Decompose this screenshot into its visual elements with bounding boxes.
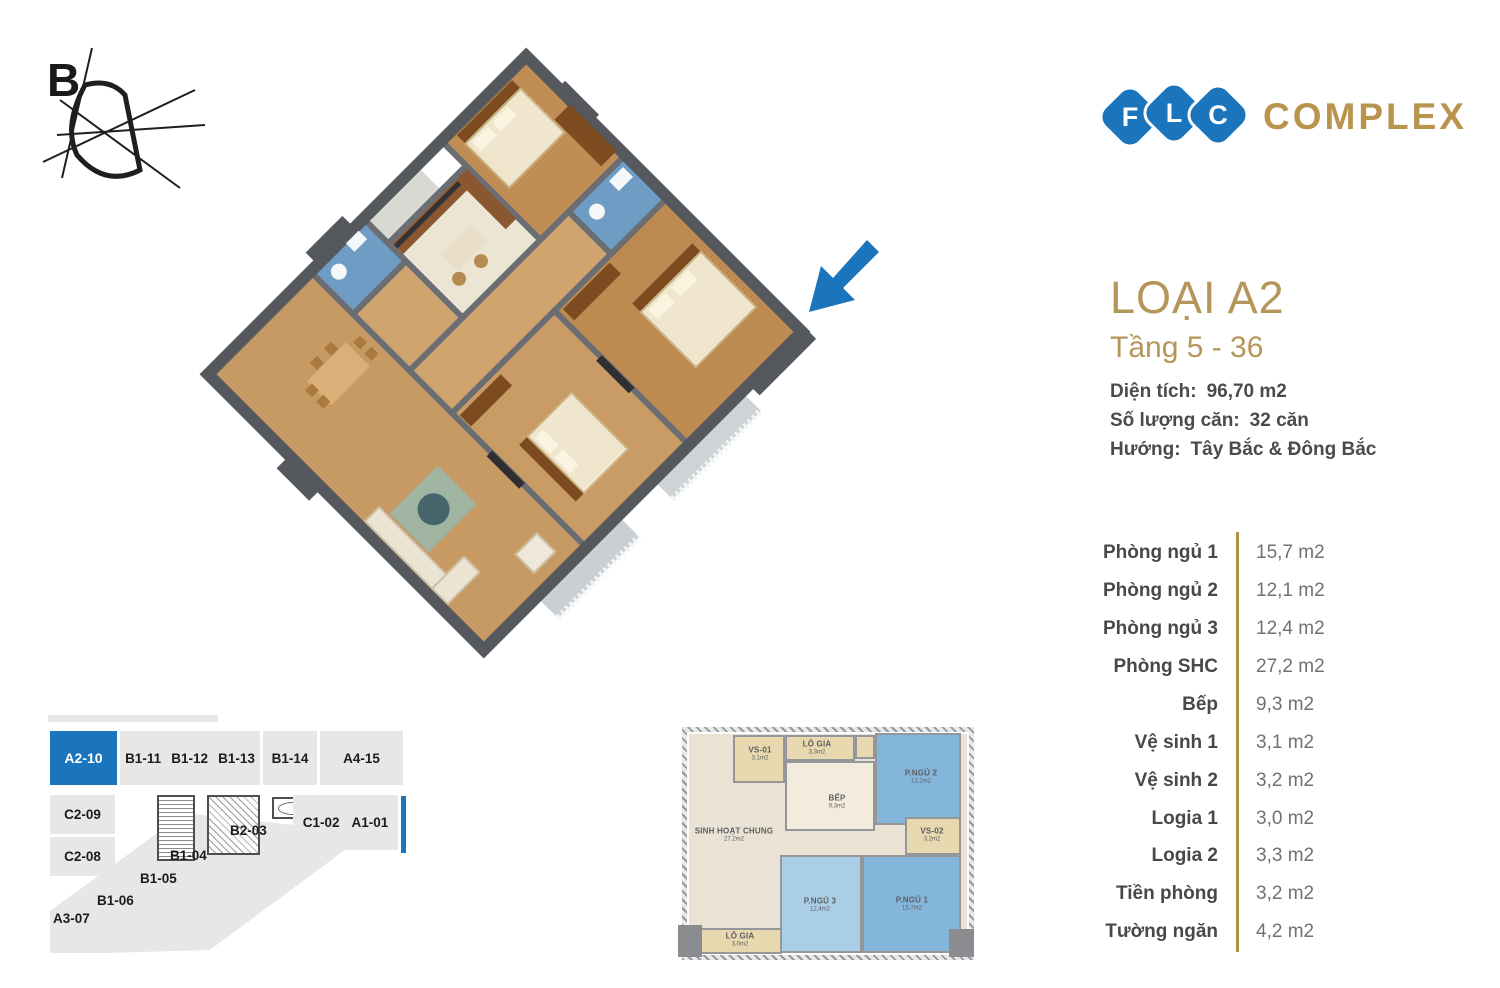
room-row: Logia 23,3 m2 xyxy=(1100,837,1490,875)
room-label: Phòng SHC xyxy=(1100,656,1218,678)
unit-label: B1-11 xyxy=(125,751,161,766)
info-value: 32 căn xyxy=(1250,406,1309,435)
unit-cell-a4-15: A4-15 xyxy=(320,731,403,785)
room-row: Phòng SHC27,2 m2 xyxy=(1100,648,1490,686)
logo-word: COMPLEX xyxy=(1263,96,1467,138)
room-logia-2-closet xyxy=(855,735,875,759)
room-area-list: Phòng ngủ 115,7 m2 Phòng ngủ 212,1 m2 Ph… xyxy=(1100,534,1490,958)
info-label: Diện tích: xyxy=(1110,377,1197,406)
balcony-slab xyxy=(678,925,702,957)
page-subtitle: Tầng 5 - 36 xyxy=(1110,331,1263,365)
room-label-sinh-hoat-chung: SINH HOẠT CHUNG27,2m2 xyxy=(695,826,774,844)
compass-label: B xyxy=(47,54,80,106)
room-row: Vệ sinh 23,2 m2 xyxy=(1100,762,1490,800)
brochure-page: B xyxy=(0,0,1500,988)
room-label: Tiền phòng xyxy=(1100,883,1218,905)
room-label: Bếp xyxy=(1100,694,1218,716)
room-area: 27,2 m2 xyxy=(1256,656,1325,678)
room-label-p-ngu-1: P.NGỦ 115,7m2 xyxy=(896,895,928,913)
info-label: Hướng: xyxy=(1110,435,1181,464)
key-plan-corridor xyxy=(48,715,218,722)
room-label-vs-01: VS-013,1m2 xyxy=(748,745,771,763)
room-label: Logia 2 xyxy=(1100,845,1218,867)
room-row: Vệ sinh 13,1 m2 xyxy=(1100,724,1490,762)
info-row-direction: Hướng: Tây Bắc & Đông Bắc xyxy=(1110,435,1376,464)
info-row-area: Diện tích: 96,70 m2 xyxy=(1110,377,1376,406)
room-label-p-ngu-3: P.NGỦ 312,4m2 xyxy=(804,896,836,914)
unit-label: A3-07 xyxy=(53,911,90,926)
unit-label: B1-05 xyxy=(140,871,177,886)
unit-cell-c2-09: C2-09 xyxy=(50,795,115,834)
room-label: Vệ sinh 2 xyxy=(1100,770,1218,792)
floor-plan-2d: VS-013,1m2 LÔ GIA3,3m2 BẾP9,3m2 P.NGỦ 21… xyxy=(672,722,974,962)
info-value: 96,70 m2 xyxy=(1207,377,1287,406)
flc-logo: F L C COMPLEX xyxy=(1075,72,1495,182)
unit-cell-a3-07: A3-07 xyxy=(53,911,90,926)
room-area: 3,0 m2 xyxy=(1256,808,1314,830)
room-area: 9,3 m2 xyxy=(1256,694,1314,716)
room-label: Logia 1 xyxy=(1100,808,1218,830)
unit-cell-a2-10: A2-10 xyxy=(50,731,117,785)
room-label-logia-1: LÔ GIA3,0m2 xyxy=(726,931,755,949)
room-label: Phòng ngủ 2 xyxy=(1100,580,1218,602)
room-label-p-ngu-2: P.NGỦ 212,1m2 xyxy=(905,768,937,786)
room-area: 12,4 m2 xyxy=(1256,618,1325,640)
unit-cell-b2-03: B2-03 xyxy=(230,823,267,838)
unit-cell-b1-14: B1-14 xyxy=(263,731,317,785)
room-row: Tiền phòng3,2 m2 xyxy=(1100,875,1490,913)
room-row: Tường ngăn4,2 m2 xyxy=(1100,913,1490,951)
room-label-logia-2: LÔ GIA3,3m2 xyxy=(803,739,832,757)
unit-cell-c1-02-a1-01: C1-02 A1-01 xyxy=(293,795,398,850)
room-label-vs-02: VS-023,2m2 xyxy=(920,826,943,844)
unit-label: C1-02 xyxy=(303,815,340,830)
unit-label: B1-04 xyxy=(170,848,207,863)
unit-cell-c2-08: C2-08 xyxy=(50,837,115,876)
floor-plan-3d xyxy=(110,18,890,698)
info-label: Số lượng căn: xyxy=(1110,406,1240,435)
unit-label: A4-15 xyxy=(343,751,380,766)
unit-label: A2-10 xyxy=(64,750,102,766)
room-label: Tường ngăn xyxy=(1100,921,1218,943)
entrance-arrow-icon xyxy=(805,232,885,317)
floor-key-plan: A2-10 B1-11 B1-12 B1-13 B1-14 A4-15 C2-0… xyxy=(45,715,410,958)
info-value: Tây Bắc & Đông Bắc xyxy=(1191,435,1377,464)
unit-label: A1-01 xyxy=(352,815,389,830)
unit-label: B1-13 xyxy=(218,751,255,766)
room-label: Phòng ngủ 3 xyxy=(1100,618,1218,640)
key-plan-accent-bar xyxy=(401,796,406,853)
balcony-slab xyxy=(949,929,974,957)
room-area: 3,3 m2 xyxy=(1256,845,1314,867)
room-label-bep: BẾP9,3m2 xyxy=(828,793,845,811)
room-area: 4,2 m2 xyxy=(1256,921,1314,943)
unit-label: B1-12 xyxy=(171,751,208,766)
room-area: 3,2 m2 xyxy=(1256,883,1314,905)
unit-cell-b1-06: B1-06 xyxy=(97,893,134,908)
logo-letter-c: C xyxy=(1195,92,1241,138)
logo-diamond: C xyxy=(1185,82,1250,147)
room-row: Bếp9,3 m2 xyxy=(1100,686,1490,724)
unit-label: C2-09 xyxy=(64,807,101,822)
unit-label: C2-08 xyxy=(64,849,101,864)
room-label: Vệ sinh 1 xyxy=(1100,732,1218,754)
unit-cell-b1-05: B1-05 xyxy=(140,871,177,886)
room-row: Logia 13,0 m2 xyxy=(1100,800,1490,838)
room-label: Phòng ngủ 1 xyxy=(1100,542,1218,564)
apartment-info: Diện tích: 96,70 m2 Số lượng căn: 32 căn… xyxy=(1110,377,1376,464)
room-area: 3,2 m2 xyxy=(1256,770,1314,792)
room-area: 12,1 m2 xyxy=(1256,580,1325,602)
unit-cell-b1-04: B1-04 xyxy=(170,848,207,863)
room-area: 3,1 m2 xyxy=(1256,732,1314,754)
room-row: Phòng ngủ 115,7 m2 xyxy=(1100,534,1490,572)
page-title: LOẠI A2 xyxy=(1110,272,1285,324)
room-area: 15,7 m2 xyxy=(1256,542,1325,564)
room-row: Phòng ngủ 312,4 m2 xyxy=(1100,610,1490,648)
room-row: Phòng ngủ 212,1 m2 xyxy=(1100,572,1490,610)
unit-label: B1-06 xyxy=(97,893,134,908)
unit-label: B2-03 xyxy=(230,823,267,838)
unit-label: B1-14 xyxy=(272,751,309,766)
info-row-units: Số lượng căn: 32 căn xyxy=(1110,406,1376,435)
unit-cell-b1-11-12-13: B1-11 B1-12 B1-13 xyxy=(120,731,260,785)
